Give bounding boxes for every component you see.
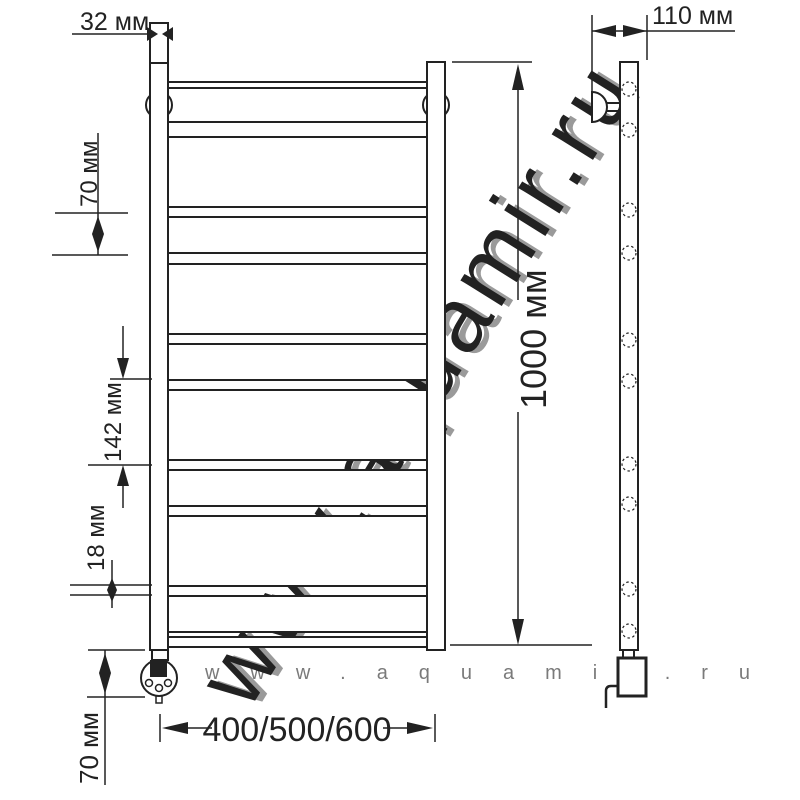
right-rail <box>427 62 445 650</box>
towel-rail-dimension-drawing: www.aquamir.ru www.aquamir.ru www.aquami… <box>0 0 800 800</box>
side-profile-tube <box>620 62 638 650</box>
rung-wide-4 <box>168 516 427 586</box>
rung-wide-2 <box>168 264 427 334</box>
dim-height-label: 1000 мм <box>513 269 554 409</box>
dim-mid-spacing-arrow-down <box>117 358 129 379</box>
heater-side-body <box>618 658 646 696</box>
dim-bottom-offset-diamond-arrow <box>99 653 111 694</box>
left-rail <box>150 23 168 650</box>
dim-depth-arrow-right <box>623 25 647 37</box>
rung-narrow-2 <box>168 344 427 380</box>
dim-mid-spacing: 142 мм <box>88 326 152 508</box>
heater-neck <box>152 650 168 660</box>
dim-width-options-label: 400/500/600 <box>202 711 391 749</box>
top-bracket-tube <box>168 88 427 122</box>
heating-element-front <box>141 650 177 703</box>
dim-depth-arrow-left <box>592 25 616 37</box>
rung-wide-3 <box>168 390 427 460</box>
drawing-svg: www.aquamir.ru www.aquamir.ru www.aquami… <box>0 0 800 800</box>
dim-top-spacing-label: 70 мм <box>76 141 103 207</box>
rung-narrow-1 <box>168 217 427 253</box>
rung-wide-1 <box>168 137 427 207</box>
heater-terminal-block <box>151 661 166 676</box>
dim-width-arrow-right <box>407 722 433 734</box>
dim-bottom-offset: 70 мм <box>74 650 145 785</box>
dim-depth-label: 110 мм <box>652 2 733 30</box>
dim-stub: 18 мм <box>83 505 117 608</box>
dim-top-spacing: 70 мм <box>52 133 128 255</box>
dim-stub-diamond-arrow <box>107 578 117 602</box>
rung-narrow-3 <box>168 470 427 506</box>
dim-height-arrow-up <box>512 64 524 90</box>
dim-mid-spacing-label: 142 мм <box>100 382 127 462</box>
dim-tube-width-label: 32 мм <box>80 8 149 36</box>
dim-bottom-offset-label: 70 мм <box>74 712 104 784</box>
dim-height-arrow-down <box>512 619 524 645</box>
heater-bottom-stub <box>156 696 162 703</box>
dim-width-arrow-left <box>162 722 188 734</box>
rung-narrow-4 <box>168 596 427 632</box>
dim-depth: 110 мм <box>592 2 735 60</box>
dim-stub-label: 18 мм <box>83 505 110 571</box>
dim-top-spacing-diamond-arrow <box>92 216 104 252</box>
side-view <box>592 15 646 708</box>
heating-element-side <box>606 650 646 708</box>
dim-mid-spacing-arrow-up <box>117 465 129 486</box>
bottom-tube <box>168 637 427 647</box>
dim-width-options: 400/500/600 <box>160 711 435 749</box>
